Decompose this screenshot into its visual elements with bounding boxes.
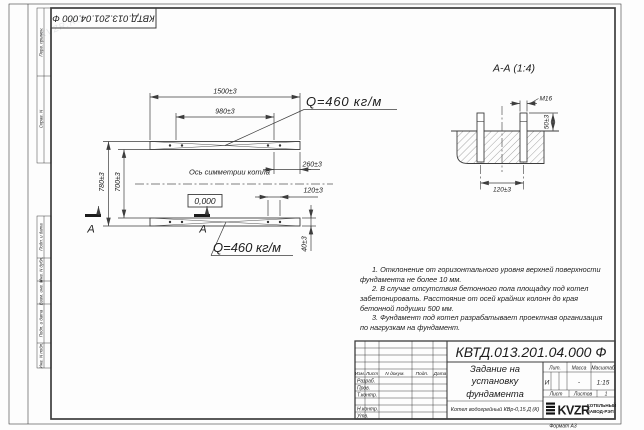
section-letter-2: А xyxy=(198,224,206,236)
note-2: 2. В случае отсутствия бетонного пола пл… xyxy=(360,284,606,313)
hdr-listov: Листов xyxy=(573,392,593,398)
val-lit: И xyxy=(545,380,550,387)
dim-260-label: 260±3 xyxy=(302,162,323,169)
level-mark-value: 0,000 xyxy=(194,196,216,206)
hdr-massa: Масса xyxy=(572,366,587,372)
section-dim-120-label: 120±3 xyxy=(493,187,511,194)
section-cut-mark-1: А xyxy=(85,206,101,236)
level-mark: 0,000 xyxy=(188,195,222,208)
dim-980-label: 980±3 xyxy=(215,109,235,116)
doc-number-rotated: КВТД.013.201.04.000 Ф xyxy=(52,13,155,24)
note-3: 3. Фундамент под котел разрабатывает про… xyxy=(360,313,606,332)
row-label-nkontr: Н.контр. xyxy=(357,407,378,413)
hdr-lit: Лит. xyxy=(548,366,561,372)
hdr-masshtab: Масштаб xyxy=(591,366,615,372)
plan-view xyxy=(135,142,333,227)
hdr-list: Лист xyxy=(549,392,563,398)
margin-label-inv-podl: Инв. N подл. xyxy=(38,343,43,369)
company-line1: КОТЕЛЬНЫЙ xyxy=(587,401,616,408)
margin-strip-top: Перв. примен. Справ. N xyxy=(37,8,51,163)
margin-label-inv-dubl: Инв. N дубл. xyxy=(38,257,43,282)
concrete-block xyxy=(457,131,544,164)
doc-number: КВТД.013.201.04.000 Ф xyxy=(456,344,607,360)
col-header-ndokum: N докум. xyxy=(385,371,404,377)
thread-label: М16 xyxy=(540,96,553,103)
col-header-izm: Изм. xyxy=(355,371,365,377)
dim-1500-label: 1500±3 xyxy=(213,89,236,96)
anchor-bolt-left xyxy=(477,113,484,162)
row-label-tkontr: Т.контр. xyxy=(357,393,377,399)
section-view: А-А (1:4) М16 50±3 120±3 xyxy=(451,63,559,194)
product-name: Котел водогрейный КВр-0,15 Д (К) xyxy=(448,402,542,418)
val-listov: 1 xyxy=(605,392,608,398)
format-label: Формат А3 xyxy=(549,424,577,430)
row-label-razrab: Разраб. xyxy=(357,379,375,385)
val-scale: 1:15 xyxy=(597,380,610,387)
drawing-title: Задание на установку фундамента xyxy=(451,362,539,401)
anchor-bolt-right xyxy=(520,113,527,162)
load-label-bottom: Q=460 кг/м xyxy=(213,240,281,255)
company-logo: KVZR КОТЕЛЬНЫЙ ЗАВОД-РЭП xyxy=(546,401,616,418)
col-header-data: Дата xyxy=(433,371,447,377)
company-line2: ЗАВОД-РЭП xyxy=(587,409,614,414)
margin-label-sprav-n: Справ. N xyxy=(38,109,43,128)
dim-780-label: 780±3 xyxy=(99,172,106,192)
drawing-sheet: KVZR.RUKVZR.RUKVZR.RUKVZR.RUKVZR.RUKVZR.… xyxy=(0,0,644,430)
margin-label-perv-primen: Перв. примен. xyxy=(38,27,43,56)
dim-700-label: 700±3 xyxy=(115,172,122,192)
boiler-coil-icon xyxy=(546,403,555,415)
section-dim-50-label: 50±3 xyxy=(544,114,551,129)
margin-label-podp-data-2: Подп. и дата xyxy=(38,309,43,337)
section-title: А-А (1:4) xyxy=(492,63,535,75)
row-label-prov: Пров. xyxy=(357,386,370,392)
col-header-list: Лист xyxy=(365,371,378,377)
plan-labels: Q=460 кг/м Q=460 кг/м Ось симметрии котл… xyxy=(85,94,397,256)
load-label-top: Q=460 кг/м xyxy=(306,94,382,109)
dim-120-label: 120±3 xyxy=(304,188,324,195)
margin-strip-bottom: Подп. и дата Инв. N дубл. Взам. инв. N П… xyxy=(37,216,51,368)
val-massa: - xyxy=(578,380,581,387)
dim-40-label: 40±3 xyxy=(302,236,309,252)
col-header-podp: Подп. xyxy=(416,371,429,377)
doc-number-box-top: КВТД.013.201.04.000 Ф xyxy=(51,8,156,28)
section-letter-1: А xyxy=(86,224,94,236)
margin-label-podp-data-1: Подп. и дата xyxy=(38,223,43,251)
logo-text: KVZR xyxy=(558,404,591,418)
margin-label-vzam-inv: Взам. инв. N xyxy=(38,279,43,305)
row-label-utv: Утв. xyxy=(357,414,368,420)
symmetry-axis-label: Ось симметрии котла xyxy=(189,168,270,177)
note-1: 1. Отклонение от горизонтального уровня … xyxy=(360,265,606,284)
notes-block: 1. Отклонение от горизонтального уровня … xyxy=(360,265,606,332)
